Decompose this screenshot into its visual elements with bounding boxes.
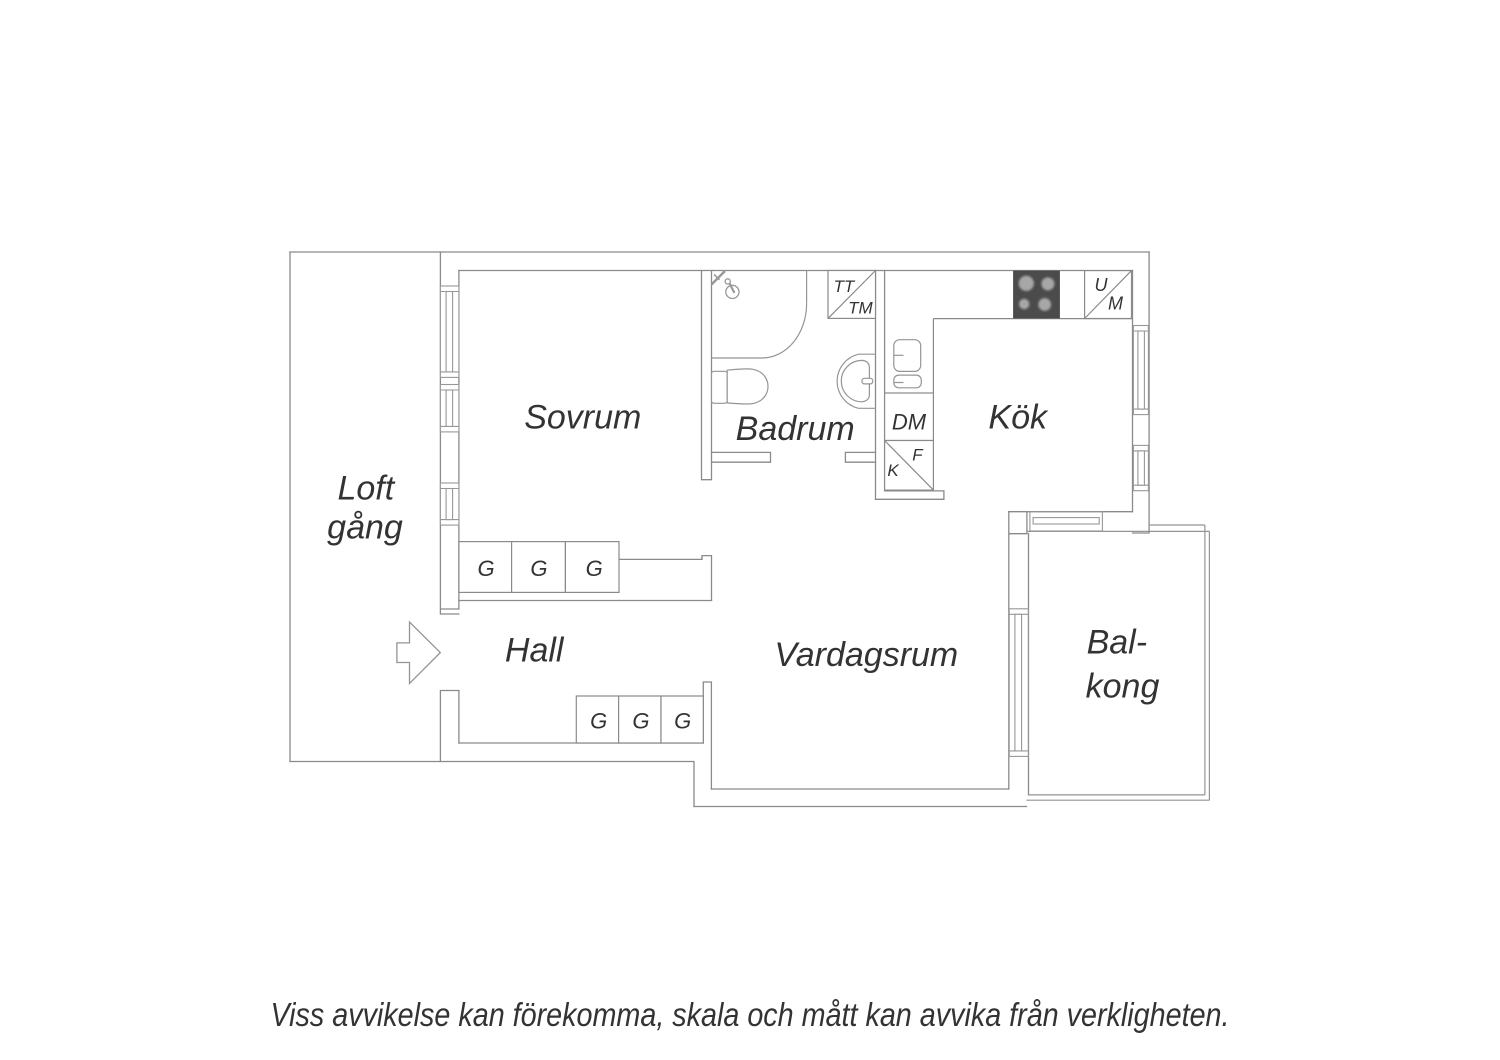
svg-text:G: G [478,556,495,581]
svg-text:F: F [912,445,924,464]
svg-text:U: U [1095,275,1109,295]
svg-text:TM: TM [848,298,873,317]
svg-text:G: G [674,708,691,733]
svg-text:DM: DM [892,410,927,435]
svg-text:G: G [632,708,649,733]
svg-text:Loft: Loft [337,470,395,508]
svg-text:K: K [887,461,899,480]
svg-text:G: G [586,556,603,581]
svg-text:Viss avvikelse kan förekomma,: Viss avvikelse kan förekomma, skala och … [271,997,1230,1034]
svg-text:Bal-: Bal- [1087,623,1147,661]
svg-text:Sovrum: Sovrum [524,398,641,436]
svg-text:TT: TT [834,277,856,296]
svg-text:G: G [590,708,607,733]
svg-text:G: G [530,556,547,581]
svg-text:gång: gång [327,509,403,547]
svg-text:M: M [1108,294,1123,314]
svg-text:Hall: Hall [505,631,565,669]
svg-text:Badrum: Badrum [736,410,855,448]
svg-text:Vardagsrum: Vardagsrum [774,636,958,674]
svg-text:Kök: Kök [988,399,1049,437]
svg-text:kong: kong [1086,668,1160,706]
